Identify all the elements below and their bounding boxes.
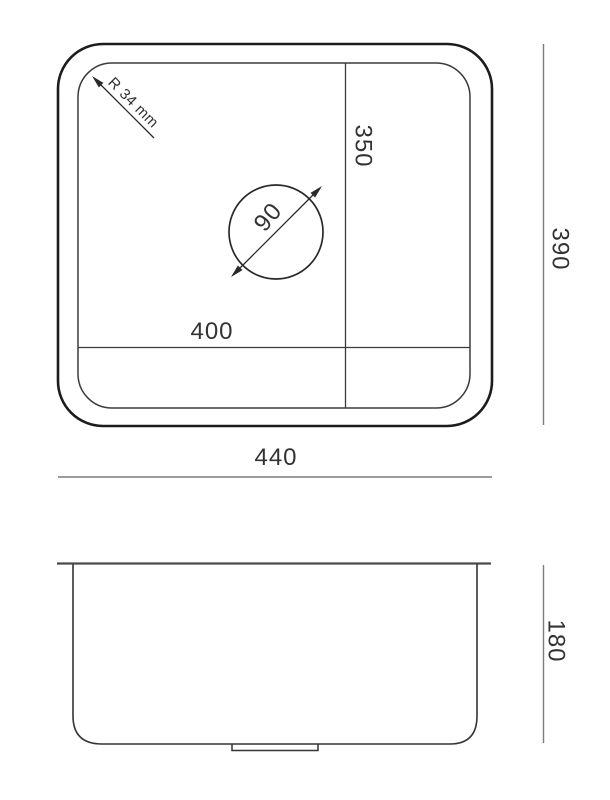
height-label: 180 bbox=[543, 619, 570, 662]
drain-diameter-line bbox=[233, 188, 320, 275]
outer-width-label: 440 bbox=[254, 444, 297, 471]
corner-radius-label: R 34 mm bbox=[104, 74, 162, 132]
inner-width-label: 400 bbox=[190, 318, 233, 345]
side-view: 180 bbox=[57, 564, 570, 751]
inner-depth-label: 350 bbox=[350, 124, 377, 167]
top-view: R 34 mm 90 350 400 390 440 bbox=[58, 44, 574, 477]
outer-depth-label: 390 bbox=[547, 227, 574, 270]
drawing-canvas: R 34 mm 90 350 400 390 440 180 bbox=[0, 0, 610, 800]
drain-fitting-tab bbox=[232, 744, 318, 751]
side-view-bowl-profile bbox=[73, 564, 477, 744]
sink-technical-drawing: R 34 mm 90 350 400 390 440 180 bbox=[0, 0, 610, 800]
drain-diameter-label: 90 bbox=[249, 198, 288, 237]
